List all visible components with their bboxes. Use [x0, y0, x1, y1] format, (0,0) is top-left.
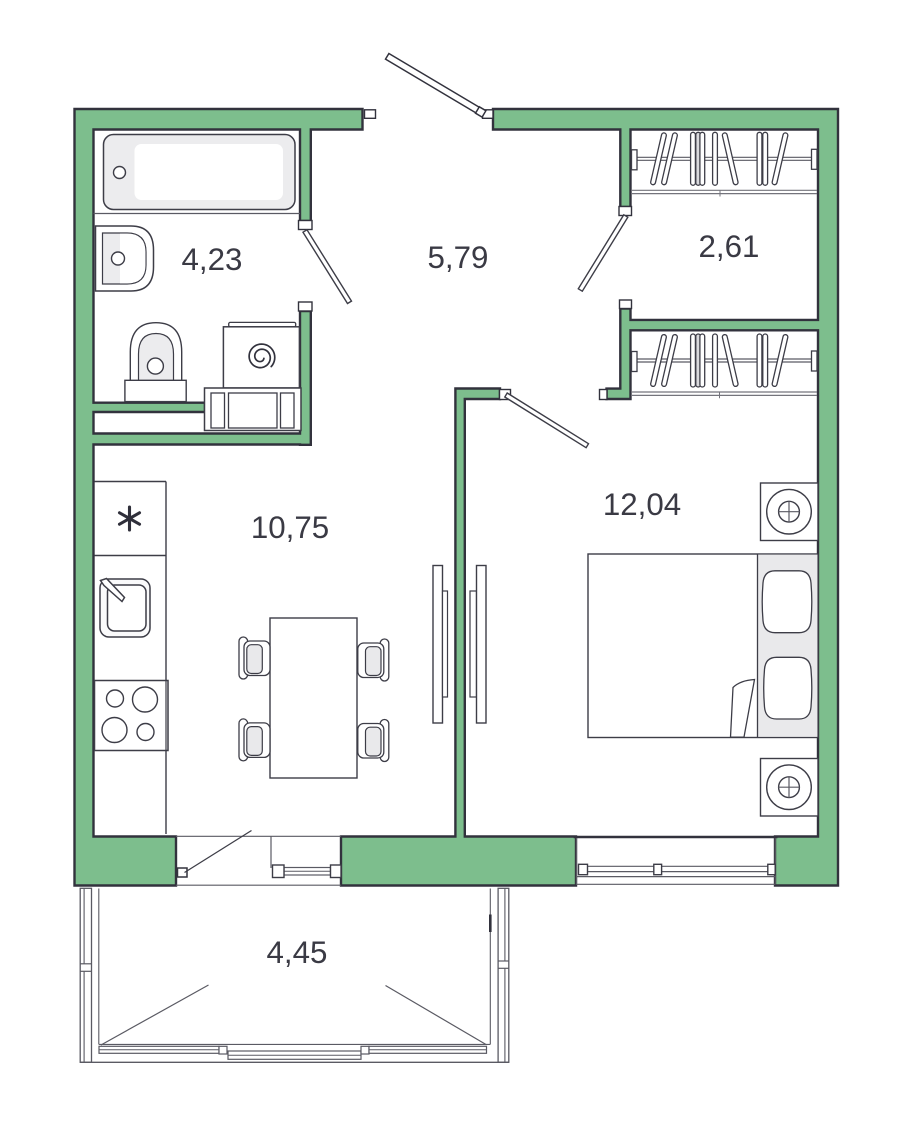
- svg-text:2,61: 2,61: [699, 229, 760, 264]
- svg-text:4,23: 4,23: [182, 242, 243, 277]
- svg-text:12,04: 12,04: [603, 487, 681, 522]
- svg-text:5,79: 5,79: [428, 240, 489, 275]
- svg-text:10,75: 10,75: [251, 510, 329, 545]
- svg-text:4,45: 4,45: [267, 935, 328, 970]
